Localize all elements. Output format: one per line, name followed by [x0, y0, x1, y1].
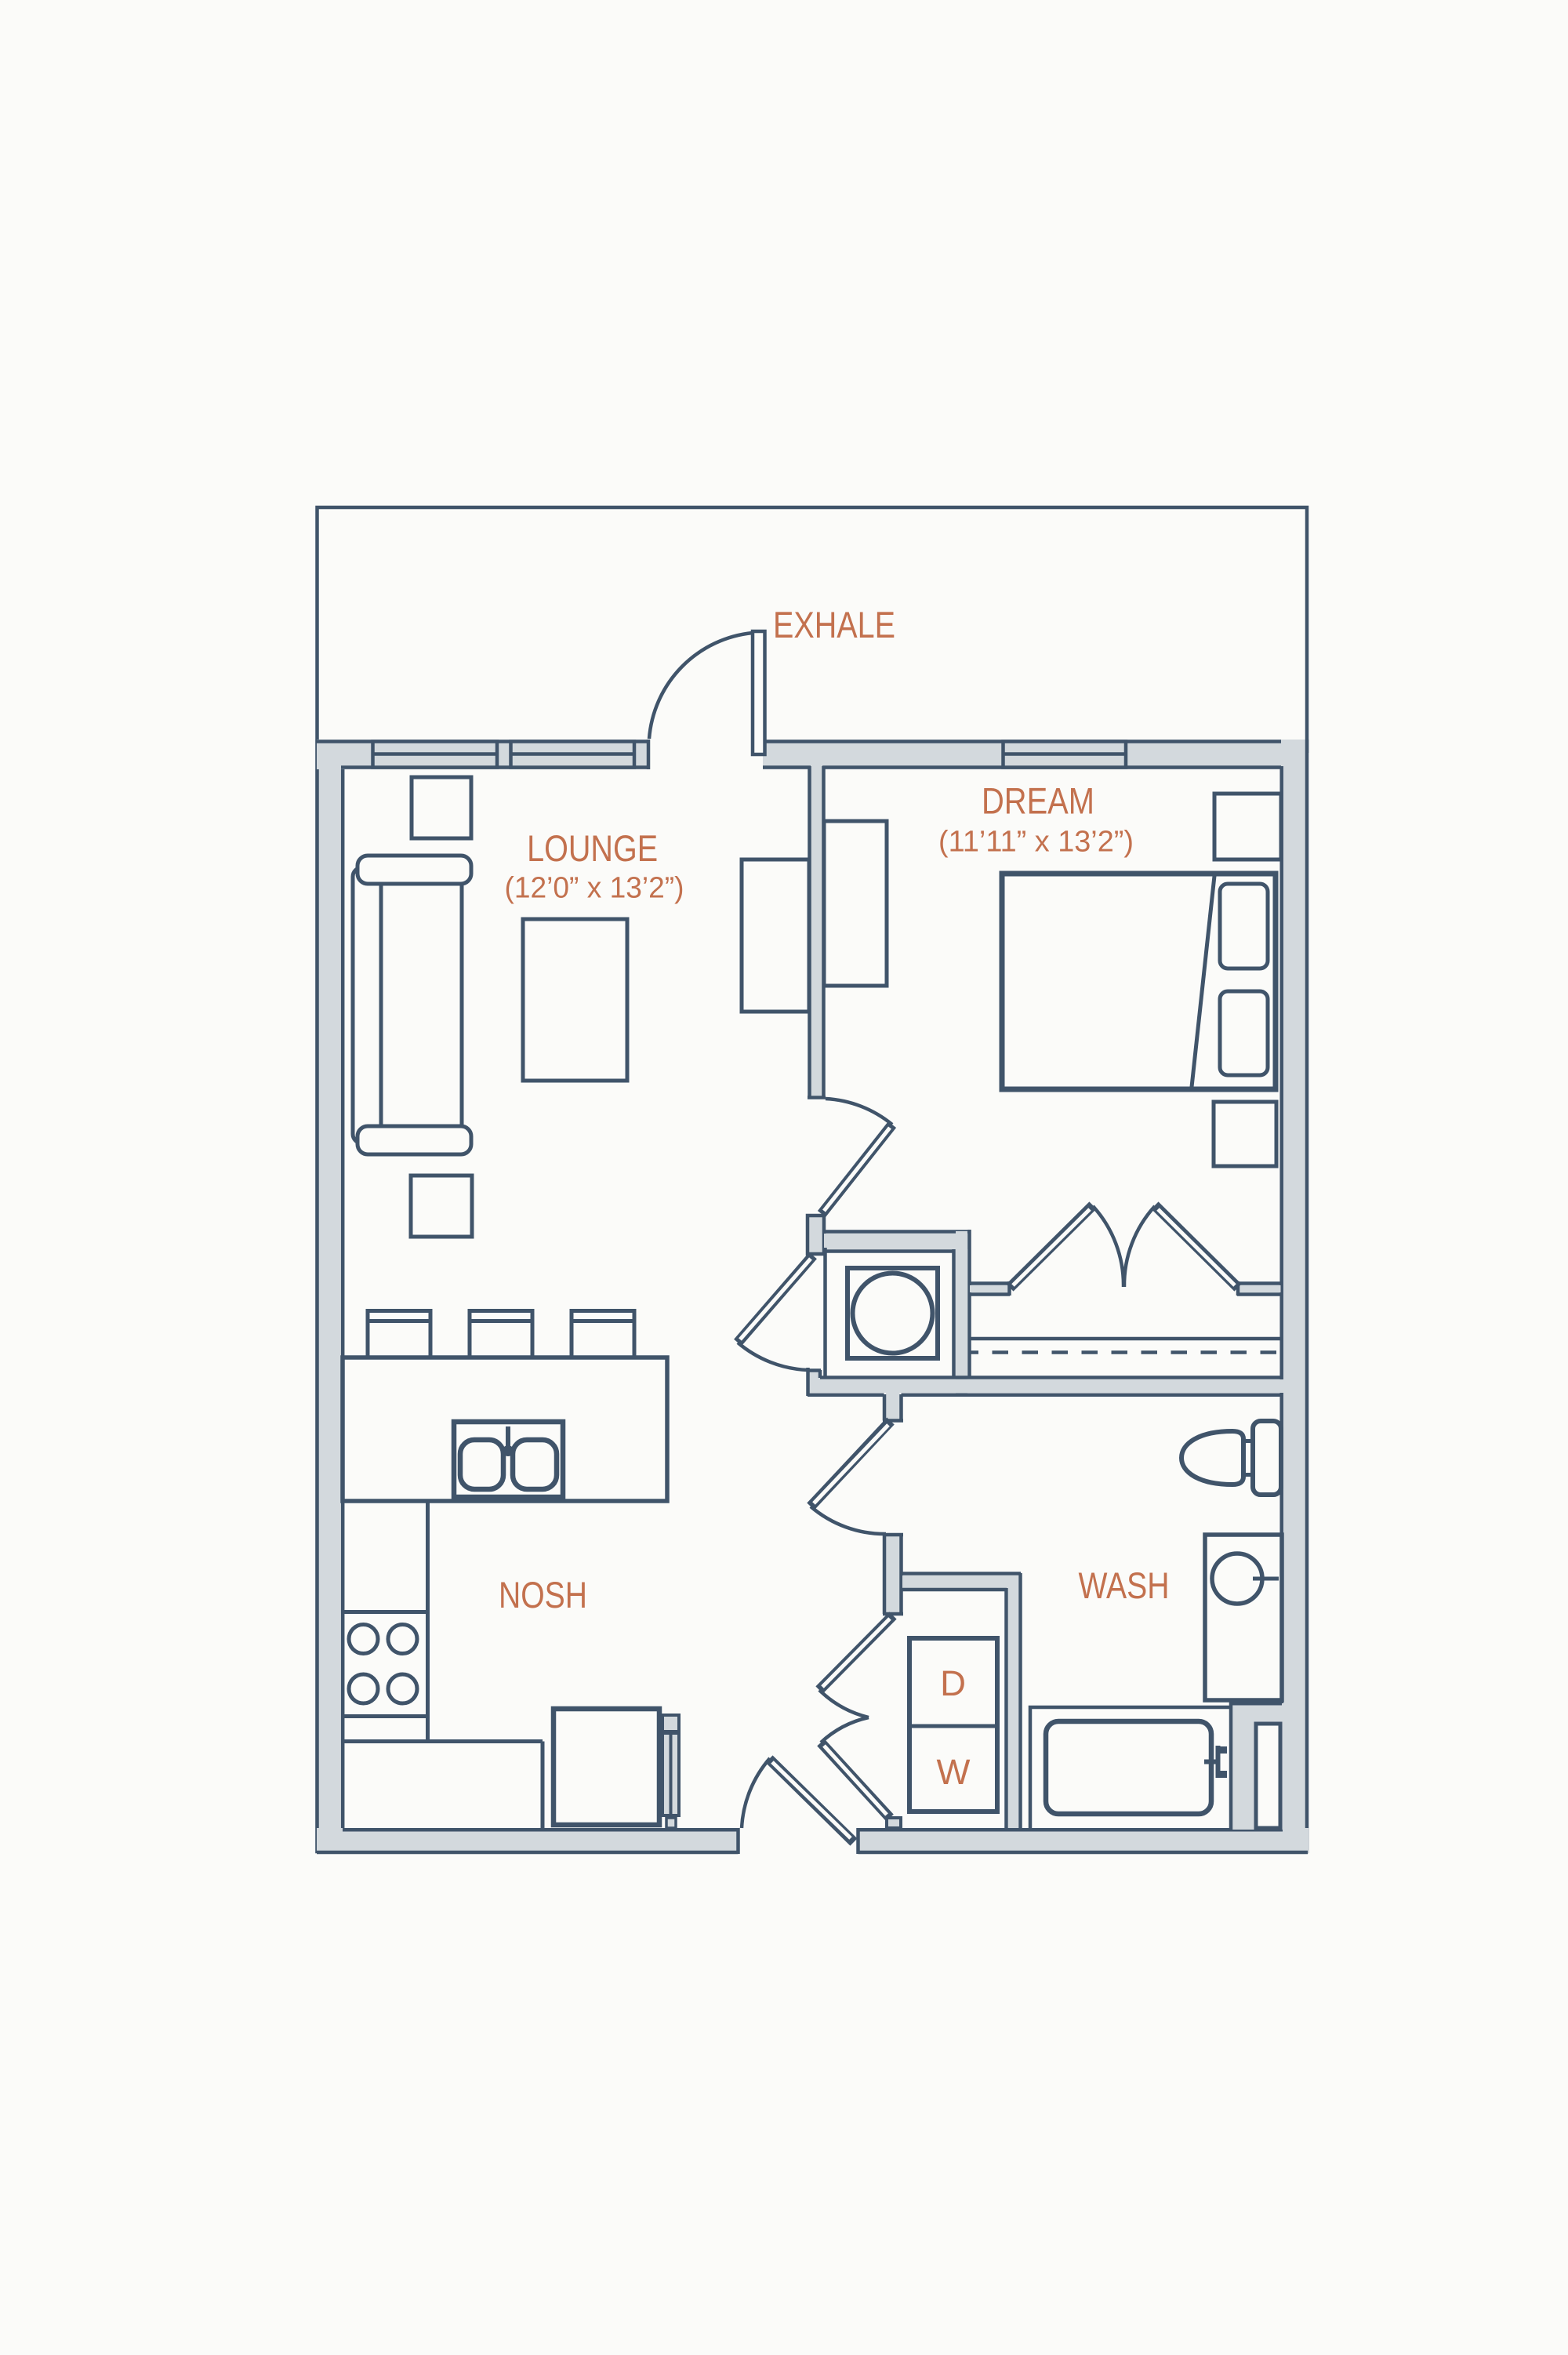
svg-text:WASH: WASH — [1079, 1565, 1170, 1606]
svg-text:DREAM: DREAM — [982, 780, 1094, 822]
svg-text:W: W — [937, 1752, 971, 1792]
svg-text:D: D — [940, 1663, 966, 1703]
svg-text:(11’11” x 13’2”): (11’11” x 13’2”) — [938, 826, 1134, 859]
svg-text:EXHALE: EXHALE — [773, 604, 895, 645]
svg-text:LOUNGE: LOUNGE — [527, 827, 658, 869]
svg-text:(12’0” x 13’2”): (12’0” x 13’2”) — [505, 872, 684, 905]
svg-text:NOSH: NOSH — [499, 1574, 587, 1615]
